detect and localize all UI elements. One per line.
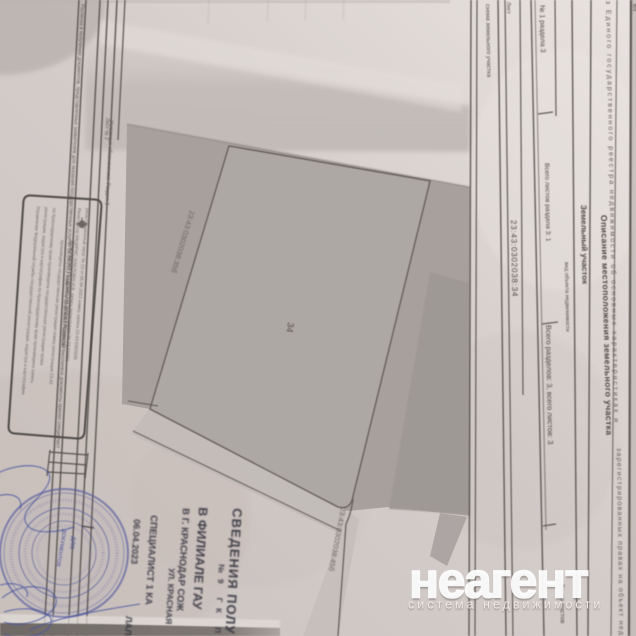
svg-text:23:43:0302038:34: 23:43:0302038:34 [509, 220, 519, 297]
svg-text:система недвижимости: система недвижимости [408, 598, 603, 612]
svg-text:Земельный участок: Земельный участок [579, 205, 589, 285]
svg-text:вид объекта недвижимости: вид объекта недвижимости [563, 262, 570, 332]
svg-text:34: 34 [284, 322, 296, 334]
svg-text:Всего листов раздела 3: 1: Всего листов раздела 3: 1 [543, 163, 551, 242]
svg-text:№ 1 раздела 3: № 1 раздела 3 [538, 5, 546, 53]
svg-text:юз: юз [631, 4, 636, 12]
svg-text:ЛАЛ: ЛАЛ [123, 616, 134, 636]
svg-text:Лист: Лист [505, 2, 511, 15]
